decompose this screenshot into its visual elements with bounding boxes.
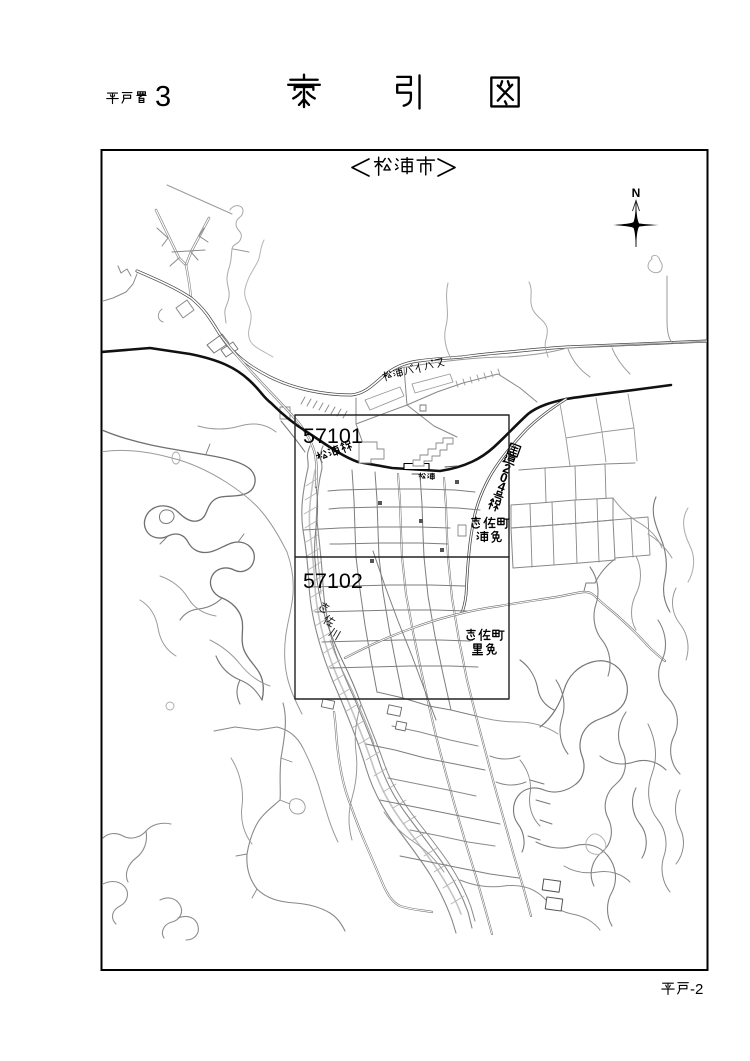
svg-text:-2: -2 xyxy=(690,981,703,998)
svg-text:57102: 57102 xyxy=(303,569,363,593)
svg-text:3: 3 xyxy=(155,81,171,113)
svg-text:N: N xyxy=(632,186,641,200)
svg-text:57101: 57101 xyxy=(303,424,363,448)
